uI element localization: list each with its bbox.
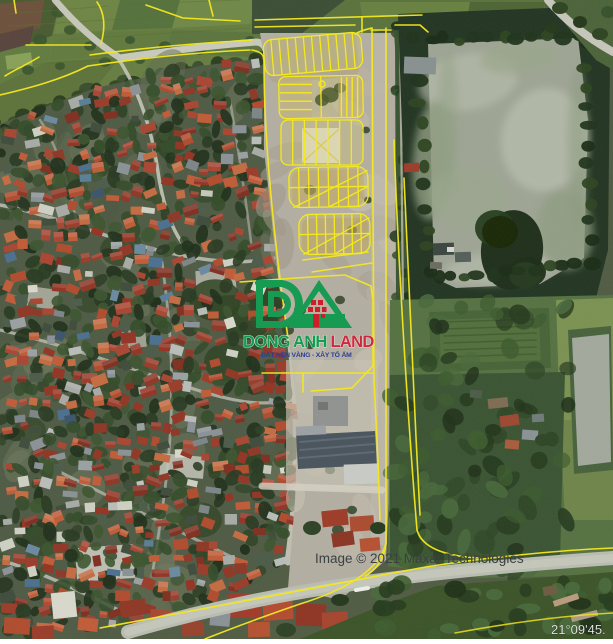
svg-text:21°09'45.: 21°09'45. [551, 622, 606, 637]
svg-text:DONG ANH LAND: DONG ANH LAND [243, 333, 374, 351]
svg-text:Image © 2021 Maxar Technologie: Image © 2021 Maxar Technologies [315, 551, 524, 566]
